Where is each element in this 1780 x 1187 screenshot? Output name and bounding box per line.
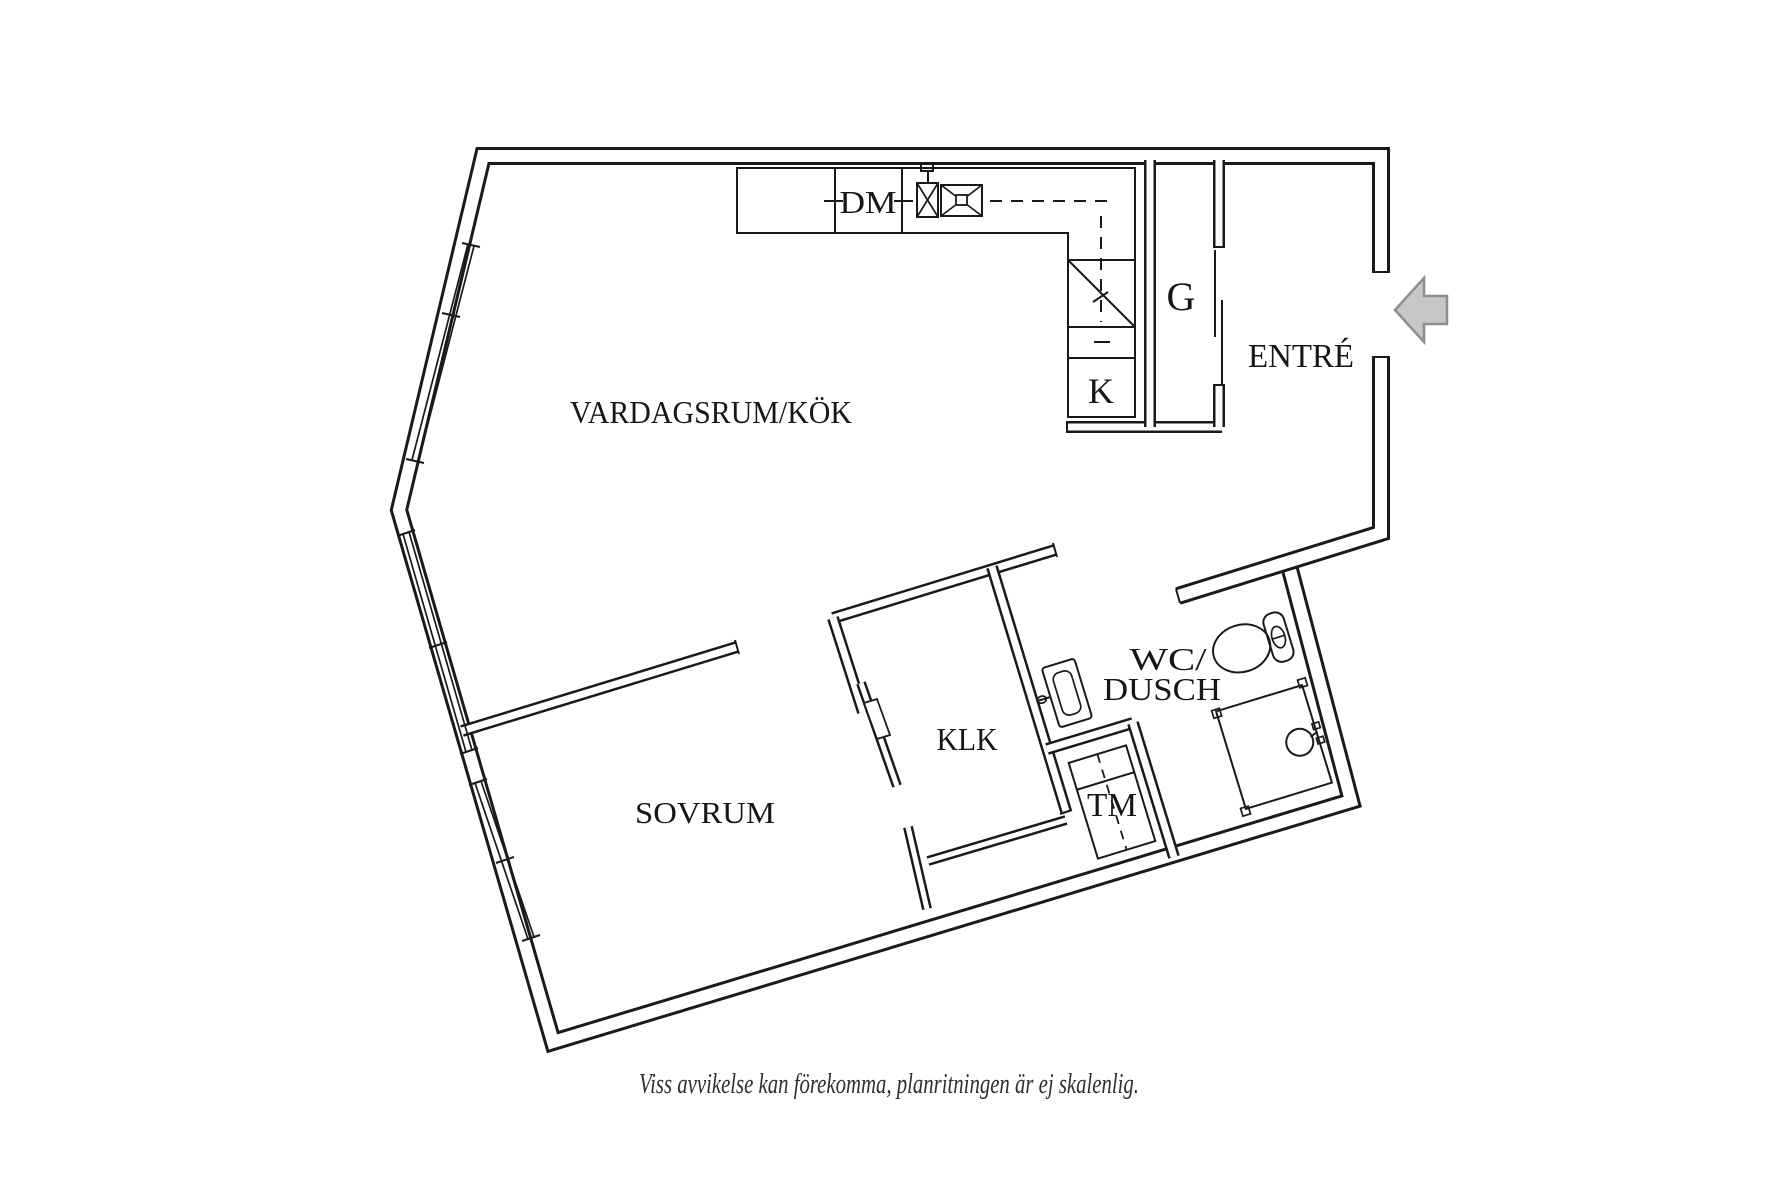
label-dishwasher: DM	[840, 184, 897, 220]
room-label-living-kitchen: VARDAGSRUM/KÖK	[570, 394, 852, 430]
sliding-door-icon	[1215, 250, 1222, 385]
entrance-arrow-icon	[1395, 278, 1447, 342]
disclaimer-caption: Viss avvikelse kan förekomma, planritnin…	[639, 1069, 1139, 1100]
floor-plan: VARDAGSRUM/KÖK SOVRUM ENTRÉ KLK WC/ DUSC…	[0, 0, 1780, 1187]
label-wardrobe: G	[1167, 274, 1196, 319]
label-washing-machine: TM	[1087, 787, 1137, 824]
floor-plan-page: VARDAGSRUM/KÖK SOVRUM ENTRÉ KLK WC/ DUSC…	[0, 0, 1780, 1187]
room-label-wc-line2: DUSCH	[1103, 671, 1221, 707]
door-leaf-icon	[861, 683, 897, 786]
label-fridge: K	[1088, 371, 1114, 411]
room-label-bedroom: SOVRUM	[635, 795, 775, 830]
kitchen-sink-icon	[917, 164, 982, 217]
room-label-walk-in-closet: KLK	[937, 721, 998, 757]
room-label-entrance: ENTRÉ	[1248, 338, 1354, 375]
kitchen-counter	[737, 164, 1135, 417]
